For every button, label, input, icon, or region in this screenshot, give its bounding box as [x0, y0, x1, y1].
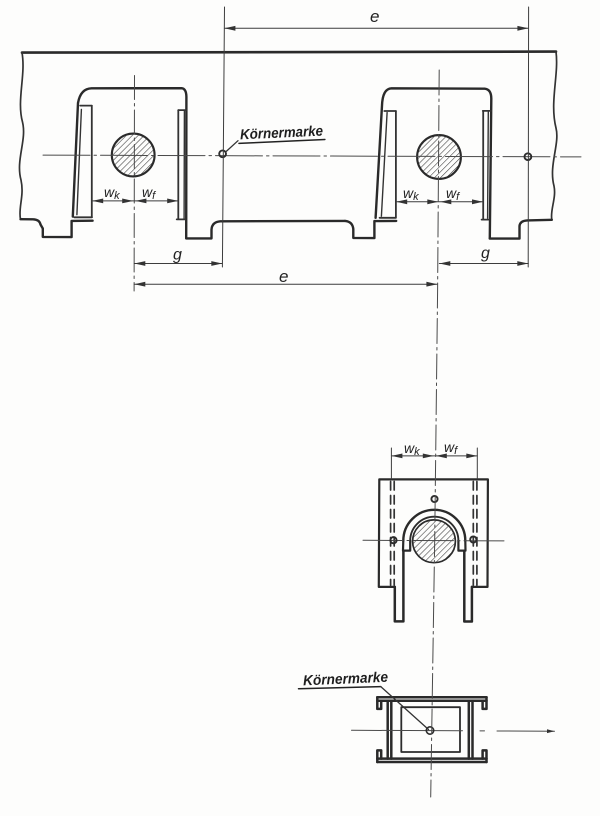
svg-text:e: e: [279, 267, 288, 286]
svg-text:wk: wk: [403, 185, 419, 203]
svg-text:g: g: [481, 245, 490, 262]
svg-text:wk: wk: [404, 440, 420, 458]
svg-text:wk: wk: [104, 184, 120, 202]
svg-text:wf: wf: [446, 185, 460, 203]
svg-text:wf: wf: [142, 184, 156, 202]
svg-text:wf: wf: [444, 439, 458, 457]
svg-text:g: g: [173, 247, 182, 264]
svg-text:e: e: [370, 7, 379, 26]
